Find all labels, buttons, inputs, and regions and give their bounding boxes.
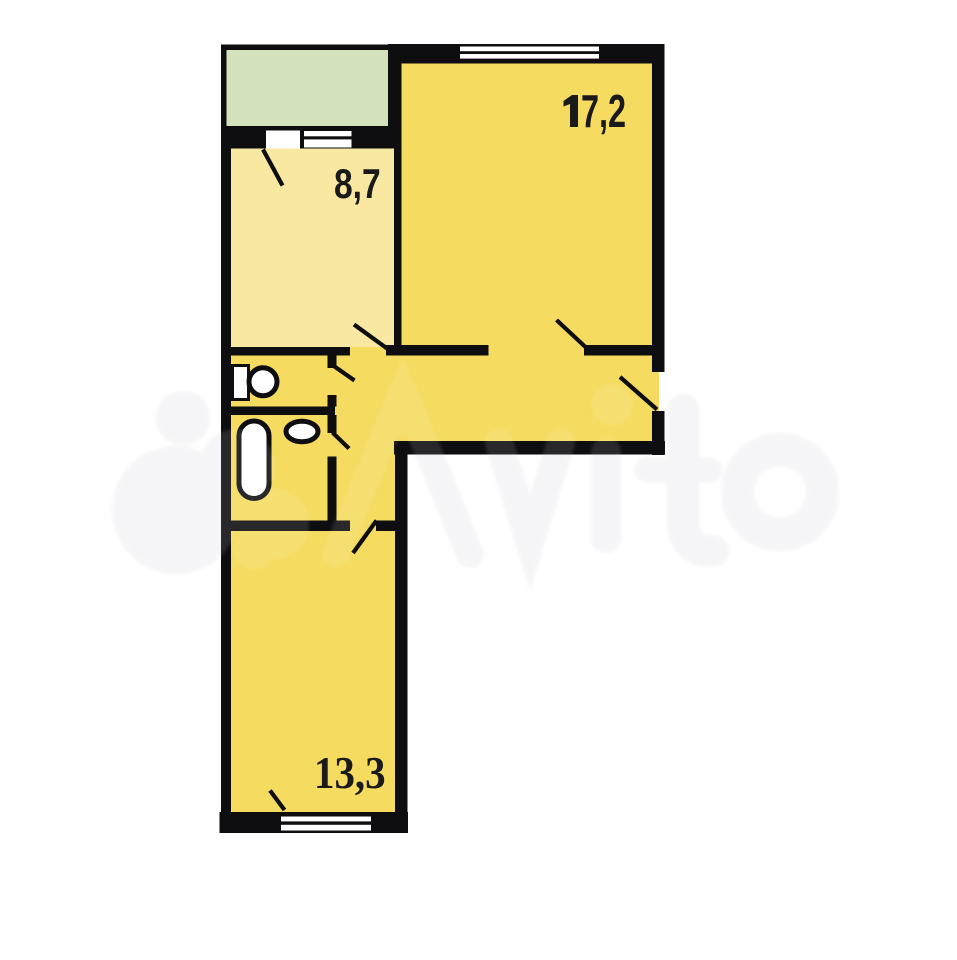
svg-text:13,3: 13,3	[314, 748, 386, 798]
svg-text:7,2: 7,2	[581, 87, 626, 138]
svg-text:8,7: 8,7	[334, 162, 381, 208]
